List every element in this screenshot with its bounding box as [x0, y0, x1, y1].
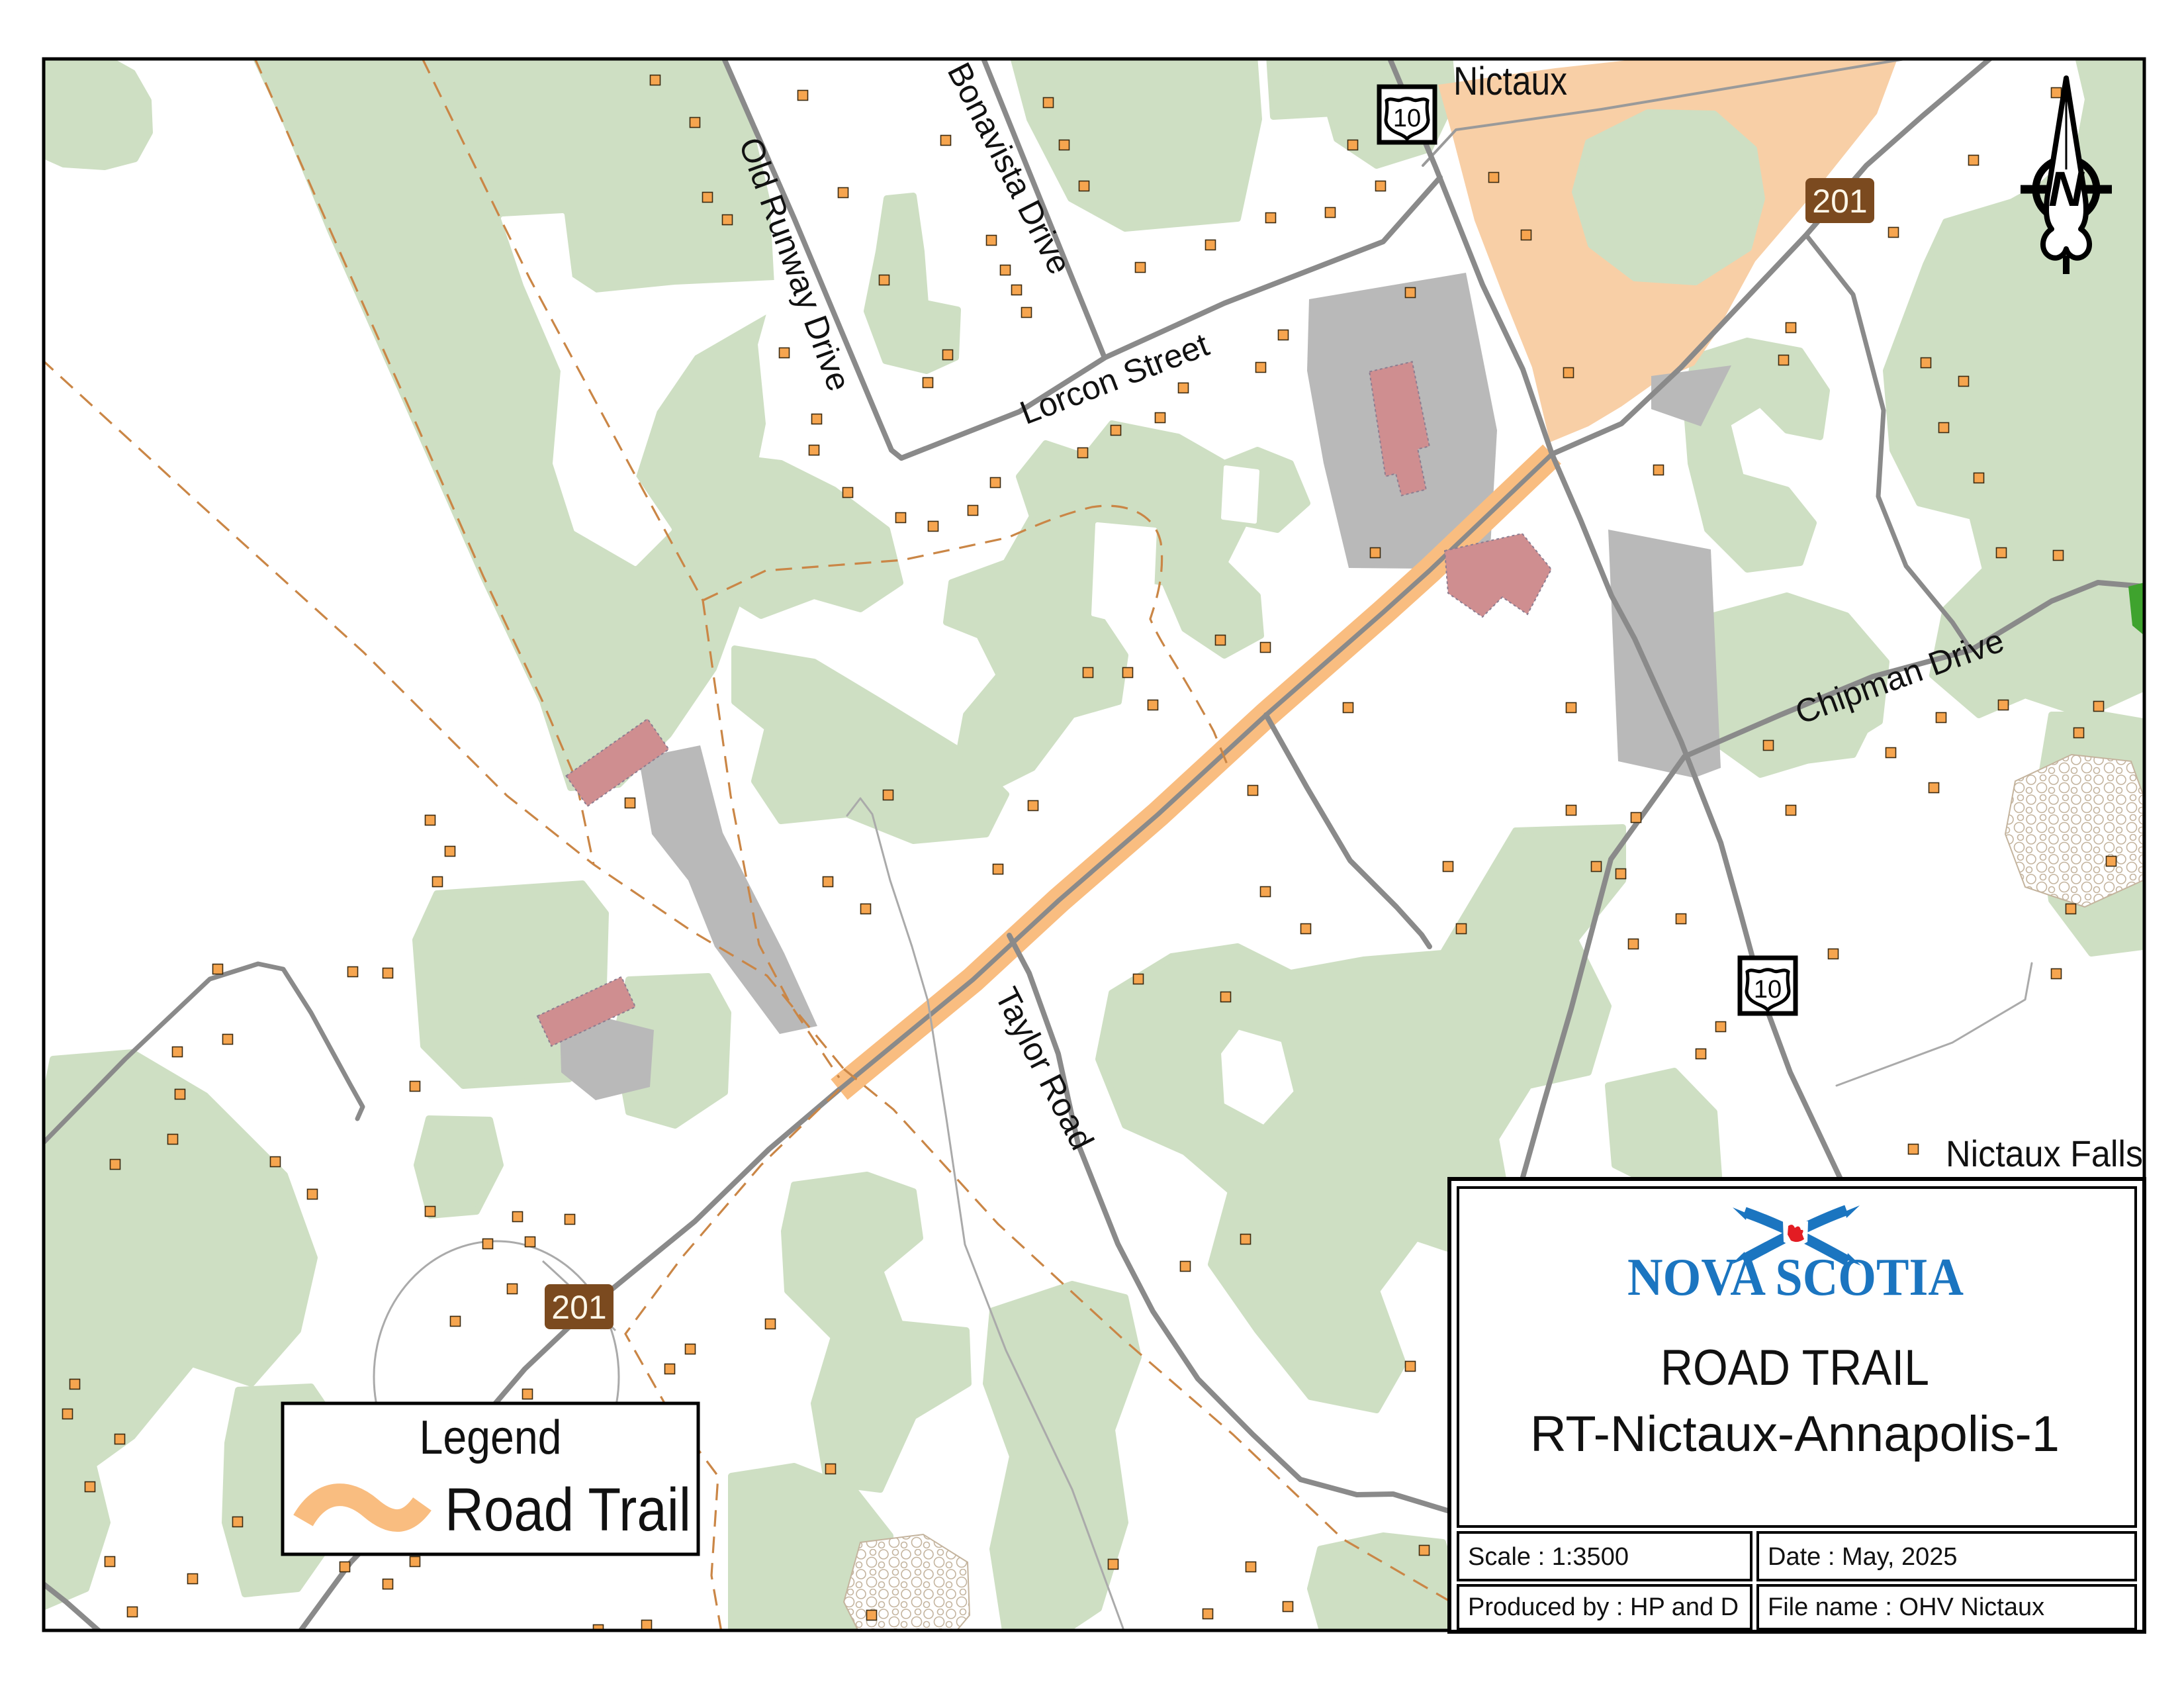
svg-text:File name : OHV Nictaux: File name : OHV Nictaux	[1768, 1593, 2044, 1621]
svg-text:201: 201	[1812, 183, 1867, 220]
svg-text:N: N	[2048, 162, 2085, 216]
svg-text:Nictaux Falls: Nictaux Falls	[1946, 1133, 2143, 1174]
svg-text:Date : May, 2025: Date : May, 2025	[1768, 1543, 1958, 1571]
svg-text:RT-Nictaux-Annapolis-1: RT-Nictaux-Annapolis-1	[1530, 1406, 2060, 1462]
svg-text:NOVA SCOTIA: NOVA SCOTIA	[1627, 1248, 1964, 1307]
svg-text:ROAD TRAIL: ROAD TRAIL	[1661, 1340, 1929, 1396]
svg-text:Legend: Legend	[420, 1411, 562, 1464]
svg-text:Road Trail: Road Trail	[445, 1476, 691, 1544]
svg-text:Produced by : HP and D: Produced by : HP and D	[1468, 1593, 1739, 1621]
svg-text:10: 10	[1393, 105, 1421, 132]
svg-text:Scale : 1:3500: Scale : 1:3500	[1468, 1543, 1629, 1571]
svg-text:Nictaux: Nictaux	[1453, 59, 1567, 103]
svg-text:10: 10	[1754, 976, 1782, 1004]
svg-text:201: 201	[551, 1289, 606, 1326]
